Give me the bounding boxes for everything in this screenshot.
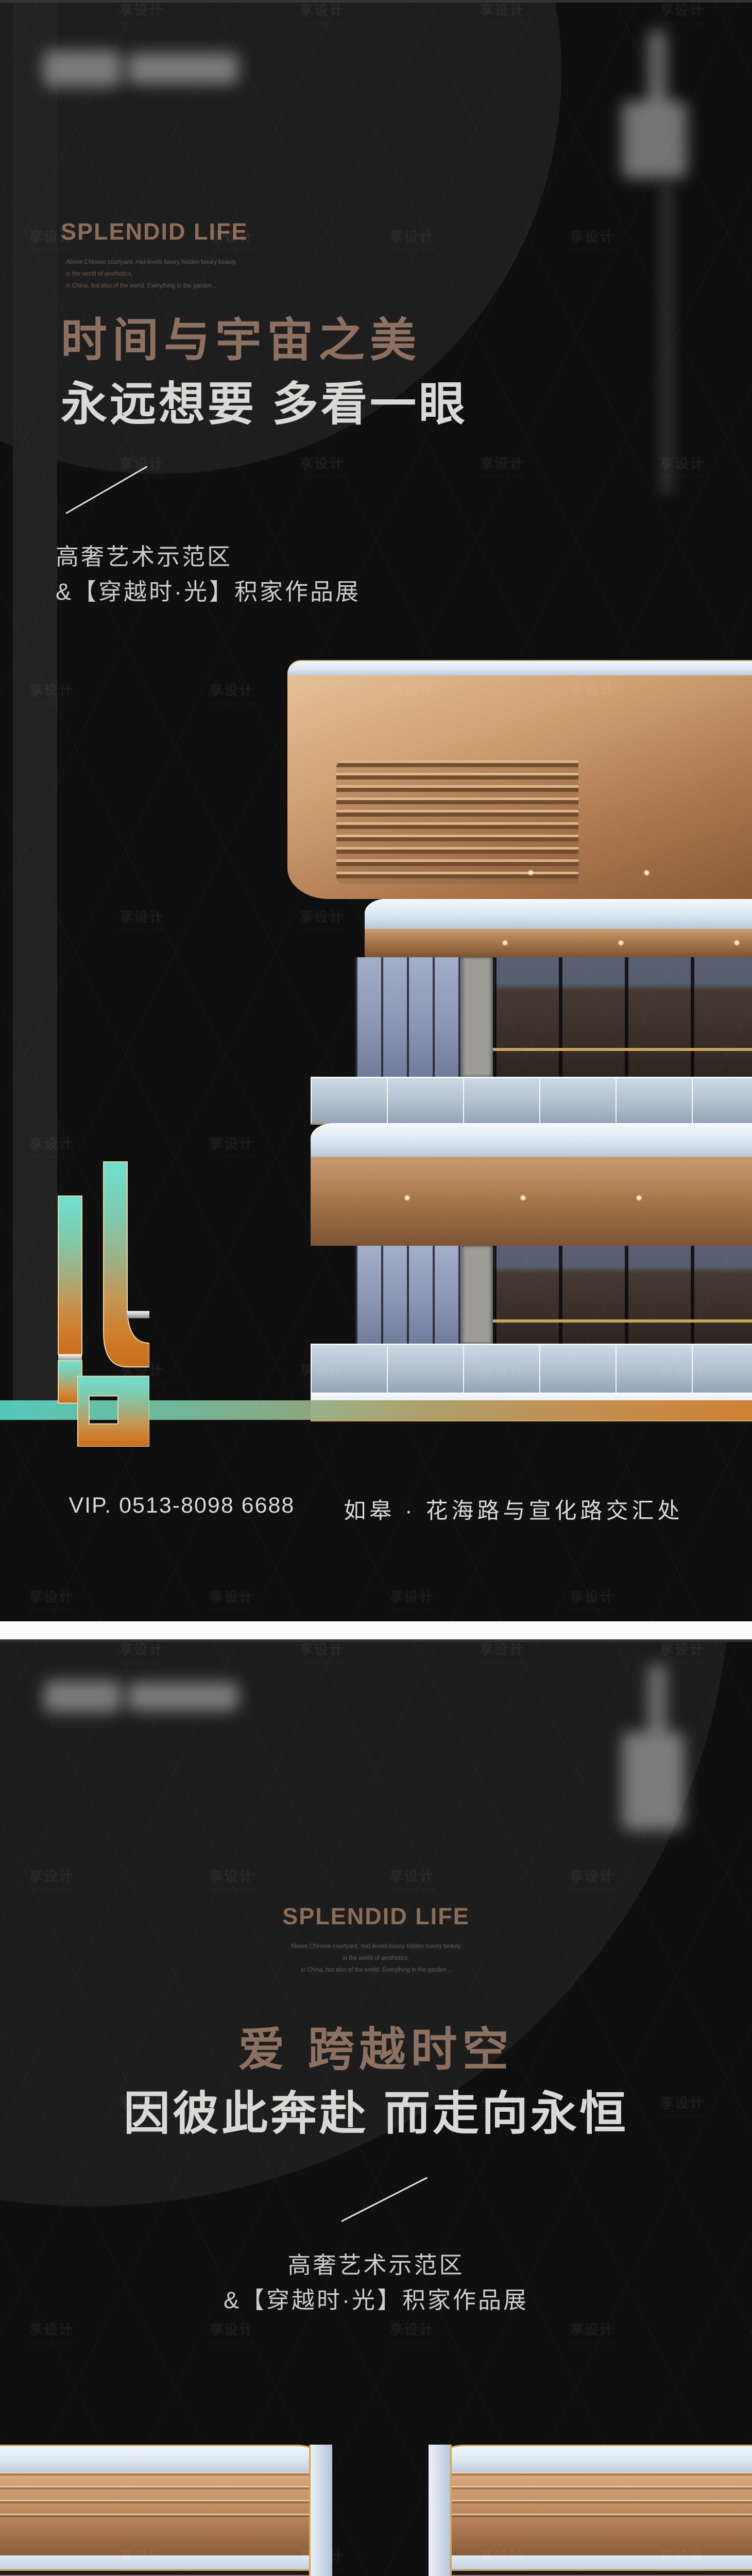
dark-window — [493, 1246, 752, 1344]
glass-window — [355, 1246, 461, 1344]
downlight-row — [442, 939, 751, 946]
gold-rail — [493, 1048, 752, 1051]
watermark-cell: 享设计DESIGN006.COM — [0, 907, 13, 933]
blurred-seal-tail — [658, 185, 675, 495]
intro-line: in the world of aesthetics, — [66, 268, 236, 280]
intro-line: Above Chinese courtyard, mid-levels luxu… — [66, 257, 236, 268]
watermark-cell: 享设计DESIGN006.COM — [361, 2319, 464, 2346]
subtitle-line-2: &【穿越时·光】积家作品展 — [0, 2289, 752, 2312]
watermark-cell: 享设计DESIGN006.COM — [0, 1587, 103, 1613]
intro-line: Above Chinese courtyard, mid-levels luxu… — [0, 1941, 752, 1953]
top-edge-line — [0, 1639, 752, 1642]
footer-bar: VIP. 0513-8098 6688 如皋 · 花海路与宣化路交汇处 — [0, 1493, 752, 1525]
splendid-life-wordmark: SPLENDID LIFE — [61, 218, 248, 245]
poster-1: SPLENDID LIFE Above Chinese courtyard, m… — [0, 0, 752, 1621]
watermark-cell: 享设计DESIGN006.COM — [721, 1587, 752, 1613]
top-edge-line — [0, 0, 752, 3]
tower-left — [0, 2445, 332, 2576]
tower-top-band — [429, 2445, 752, 2473]
left-accent-strip — [13, 0, 57, 1420]
blurred-seal-mark — [648, 30, 666, 107]
project-address: 如皋 · 花海路与宣化路交汇处 — [344, 1493, 683, 1525]
brand-emblem-monogram — [54, 1150, 149, 1447]
watermark-cell: 享设计DESIGN006.COM — [631, 0, 734, 26]
downlight-row — [344, 1194, 752, 1201]
intro-line: in the world of aesthetics, — [0, 1953, 752, 1964]
blurred-seal-mark — [622, 1732, 684, 1830]
watermark-cell: 享设计DESIGN006.COM — [180, 2319, 283, 2346]
crown-louvers — [336, 760, 578, 884]
splendid-life-wordmark: SPLENDID LIFE — [0, 1903, 752, 1930]
tower-right — [429, 2445, 752, 2576]
tower-crown — [0, 2472, 332, 2555]
crown-shelves — [0, 2472, 332, 2526]
tower-top-band — [0, 2445, 332, 2473]
watermark-cell: 享设计DESIGN006.COM — [541, 227, 644, 253]
glass-balustrade — [311, 1077, 752, 1123]
blurred-brand-logo — [128, 53, 238, 84]
tower-floors — [0, 2555, 332, 2576]
tower-rail — [429, 2445, 452, 2576]
crown-shelves — [429, 2472, 752, 2526]
diagonal-slash — [341, 2177, 428, 2222]
subtitle-line-2: &【穿越时·光】积家作品展 — [56, 580, 361, 603]
tower-crown — [429, 2472, 752, 2555]
blurred-brand-logo — [128, 1682, 238, 1711]
stone-pillar — [461, 1246, 493, 1344]
watermark-cell: 享设计DESIGN006.COM — [451, 453, 554, 480]
headline-accent: 爱 跨越时空 — [0, 2027, 752, 2073]
balcony-fascia — [365, 899, 752, 929]
subtitle-line-1: 高奢艺术示范区 — [0, 2253, 752, 2277]
watermark-cell: 享设计DESIGN006.COM — [721, 1866, 752, 1892]
intro-line: in China, but also of the world. Everyth… — [0, 1964, 752, 1976]
headline-accent: 时间与宇宙之美 — [61, 317, 421, 364]
headline-main: 因彼此奔赴 而走向永恒 — [0, 2091, 752, 2137]
watermark-cell: 享设计DESIGN006.COM — [270, 453, 373, 480]
tower-floors — [429, 2555, 752, 2576]
watermark-cell: 享设计DESIGN006.COM — [721, 2319, 752, 2346]
window-row — [355, 957, 752, 1077]
building-roof-band — [287, 661, 752, 676]
watermark-cell: 享设计DESIGN006.COM — [631, 453, 734, 480]
intro-english-text: Above Chinese courtyard, mid-levels luxu… — [66, 257, 236, 292]
watermark-cell: 享设计DESIGN006.COM — [0, 453, 13, 480]
blurred-brand-logo — [44, 1681, 121, 1713]
watermark-cell: 享设计DESIGN006.COM — [0, 1360, 13, 1386]
balcony-fascia — [311, 1123, 752, 1157]
window-row — [355, 1246, 752, 1344]
tower-rail — [309, 2445, 332, 2576]
stone-pillar — [461, 957, 493, 1077]
downlight-row — [468, 869, 752, 876]
watermark-cell: 享设计DESIGN006.COM — [180, 680, 283, 706]
blurred-seal-mark — [648, 1664, 666, 1736]
watermark-cell: 享设计DESIGN006.COM — [180, 1133, 283, 1160]
intro-english-text: Above Chinese courtyard, mid-levels luxu… — [0, 1941, 752, 1976]
watermark-cell: 享设计DESIGN006.COM — [90, 907, 193, 933]
glass-window — [355, 957, 461, 1077]
watermark-cell: 享设计DESIGN006.COM — [180, 1587, 283, 1613]
vip-phone: VIP. 0513-8098 6688 — [69, 1493, 295, 1525]
headline-main: 永远想要 多看一眼 — [61, 381, 468, 428]
blurred-seal-mark — [622, 101, 687, 178]
subtitle-line-1: 高奢艺术示范区 — [56, 545, 232, 568]
poster-separator — [0, 1621, 752, 1639]
building-crown — [287, 675, 752, 899]
poster-series-canvas: SPLENDID LIFE Above Chinese courtyard, m… — [0, 0, 752, 2576]
gold-rail — [493, 1319, 752, 1323]
intro-line: in China, but also of the world. Everyth… — [66, 280, 236, 292]
watermark-cell: 享设计DESIGN006.COM — [361, 1587, 464, 1613]
dark-window — [493, 957, 752, 1077]
diagonal-slash — [65, 466, 147, 514]
watermark-cell: 享设计DESIGN006.COM — [0, 2319, 103, 2346]
building-photo — [0, 2445, 752, 2576]
building-photo — [287, 661, 752, 1420]
glass-balustrade — [311, 1344, 752, 1393]
watermark-cell: 享设计DESIGN006.COM — [721, 227, 752, 253]
poster-2: SPLENDID LIFE Above Chinese courtyard, m… — [0, 1639, 752, 2576]
watermark-cell: 享设计DESIGN006.COM — [541, 2319, 644, 2346]
watermark-cell: 享设计DESIGN006.COM — [541, 1587, 644, 1613]
blurred-brand-logo — [44, 50, 121, 87]
